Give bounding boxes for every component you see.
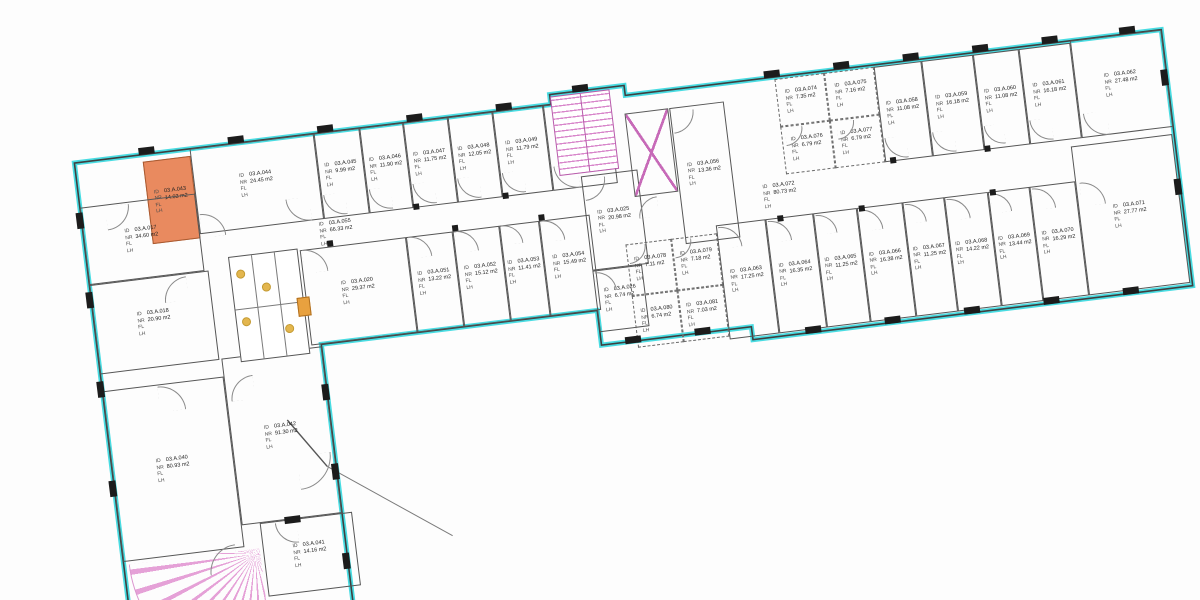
room-label: IDNRFLLH03.A.02520.98 m2 — [597, 205, 633, 235]
column-marker — [858, 205, 865, 212]
room-label: IDNRFLLH03.A.06011.08 m2 — [984, 85, 1020, 115]
room-03-a-042: IDNRFLLH03.A.04291.30 m2 — [221, 346, 342, 525]
column-marker — [777, 215, 784, 222]
room-label: IDNRFLLH03.A.01820.90 m2 — [136, 308, 172, 338]
room-label: IDNRFLLH03.A.05916.18 m2 — [935, 91, 971, 121]
room-label: IDNRFLLH03.A.06913.44 m2 — [998, 232, 1034, 262]
floor-plan: IDNRFLLH03.A.04314.03 m2IDNRFLLH03.A.044… — [0, 0, 1200, 600]
room-03-a-074: IDNRFLLH03.A.0747.35 m2 — [774, 73, 829, 127]
room-label: IDNRFLLH03.A.04711.75 m2 — [413, 148, 449, 178]
room-label: IDNRFLLH03.A.07127.77 m2 — [1113, 200, 1149, 230]
room-03-a-075: IDNRFLLH03.A.0757.16 m2 — [824, 67, 879, 121]
room-label: IDNRFLLH03.A.04424.45 m2 — [239, 169, 275, 199]
column-marker — [413, 203, 420, 210]
room-label: IDNRFLLH03.A.04291.30 m2 — [264, 421, 300, 451]
column-marker — [327, 240, 334, 247]
wc-highlight-fixture — [296, 296, 311, 316]
wc-block — [228, 248, 310, 362]
wc-fixture — [263, 283, 271, 291]
wc-fixture — [286, 325, 294, 333]
column-marker — [452, 225, 459, 232]
room-label: IDNRFLLH03.A.04911.79 m2 — [505, 136, 541, 166]
room-label: IDNRFLLH03.A.05811.08 m2 — [885, 97, 921, 127]
wc-fixture — [243, 318, 251, 326]
room-03-a-017: IDNRFLLH03.A.01734.60 m2 — [80, 194, 205, 286]
room-label: IDNRFLLH03.A.06227.48 m2 — [1103, 69, 1139, 99]
column-marker — [502, 192, 509, 199]
room-label: IDNRFLLH03.A.0459.99 m2 — [324, 159, 359, 189]
room-label: IDNRFLLH03.A.04611.90 m2 — [368, 153, 404, 183]
column-marker — [890, 157, 897, 164]
wc-partition — [235, 301, 303, 310]
room-label: IDNRFLLH03.A.06511.25 m2 — [824, 253, 860, 283]
room-label: IDNRFLLH03.A.01734.60 m2 — [124, 224, 160, 254]
wc-fixture — [237, 270, 245, 278]
room-label: IDNRFLLH03.A.06711.25 m2 — [912, 242, 948, 272]
staircase-hatch — [550, 89, 619, 176]
room-label: IDNRFLLH03.A.0806.74 m2 — [640, 304, 675, 334]
room-label: IDNRFLLH03.A.06416.35 m2 — [778, 258, 814, 288]
column-marker — [538, 214, 545, 221]
room-03-a-071: IDNRFLLH03.A.07127.77 m2 — [1071, 134, 1191, 295]
room-label: IDNRFLLH03.A.06116.18 m2 — [1032, 79, 1068, 109]
floor-plan-sheet: IDNRFLLH03.A.04314.03 m2IDNRFLLH03.A.044… — [0, 0, 1200, 600]
room-label: IDNRFLLH03.A.05215.12 m2 — [464, 261, 500, 291]
room-label: IDNRFLLH03.A.05415.49 m2 — [552, 250, 588, 280]
room-label: IDNRFLLH03.A.06814.22 m2 — [955, 237, 991, 267]
room-label: IDNRFLLH03.A.0747.35 m2 — [785, 85, 820, 115]
room-label: IDNRFLLH03.A.02029.37 m2 — [341, 276, 377, 306]
room-label: IDNRFLLH03.A.07280.73 m2 — [762, 180, 798, 210]
column-marker — [984, 145, 991, 152]
room-label: IDNRFLLH03.A.04080.93 m2 — [155, 454, 191, 484]
room-label: IDNRFLLH03.A.06317.25 m2 — [730, 264, 766, 294]
room-label: IDNRFLLH03.A.04812.05 m2 — [457, 142, 493, 172]
room-03-a-018: IDNRFLLH03.A.01820.90 m2 — [89, 270, 219, 374]
room-label: IDNRFLLH03.A.06616.38 m2 — [868, 247, 904, 277]
room-label: IDNRFLLH03.A.07016.29 m2 — [1041, 226, 1077, 256]
room-label: IDNRFLLH03.A.0817.03 m2 — [686, 299, 721, 329]
column-marker — [989, 189, 996, 196]
room-label: IDNRFLLH03.A.04114.16 m2 — [292, 539, 328, 569]
room-label: IDNRFLLH03.A.0757.16 m2 — [834, 79, 869, 109]
room-label: IDNRFLLH03.A.05113.22 m2 — [417, 267, 453, 297]
room-label: IDNRFLLH03.A.05311.41 m2 — [507, 256, 543, 286]
